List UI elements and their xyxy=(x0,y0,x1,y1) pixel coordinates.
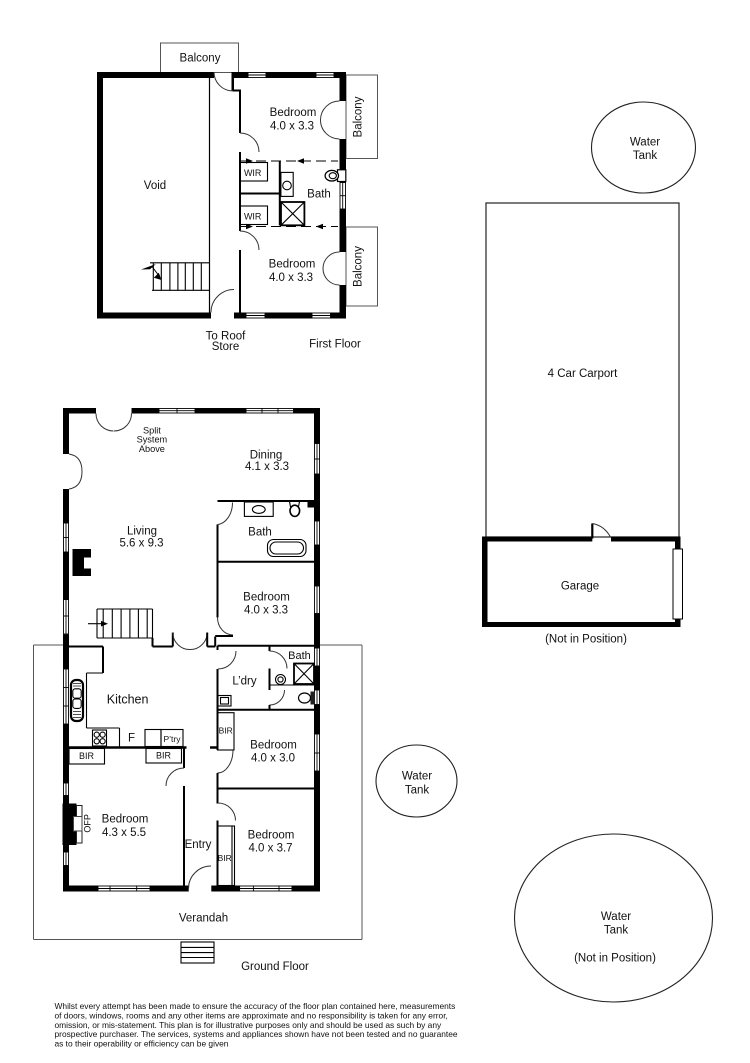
svg-text:Kitchen: Kitchen xyxy=(107,693,149,707)
svg-text:Living: Living xyxy=(127,526,157,538)
svg-text:Bedroom: Bedroom xyxy=(248,830,295,842)
svg-text:4.0 x 3.3: 4.0 x 3.3 xyxy=(244,605,288,617)
svg-text:Water: Water xyxy=(402,771,432,783)
svg-text:First Floor: First Floor xyxy=(309,339,361,351)
svg-text:Water: Water xyxy=(601,911,631,923)
svg-text:4.0 x 3.0: 4.0 x 3.0 xyxy=(251,753,295,765)
svg-text:Above: Above xyxy=(139,444,165,454)
svg-text:4.3 x 5.5: 4.3 x 5.5 xyxy=(102,827,146,839)
svg-text:Bath: Bath xyxy=(248,527,272,539)
svg-text:Tank: Tank xyxy=(405,785,430,797)
svg-text:WIR: WIR xyxy=(244,168,262,178)
svg-text:BIR: BIR xyxy=(79,751,95,761)
svg-text:(Not in Position): (Not in Position) xyxy=(545,634,627,646)
svg-text:Tank: Tank xyxy=(633,150,658,162)
svg-text:(Not in Position): (Not in Position) xyxy=(574,953,656,965)
svg-text:Bedroom: Bedroom xyxy=(250,740,297,752)
svg-text:Garage: Garage xyxy=(561,581,599,593)
svg-text:BIR: BIR xyxy=(219,726,233,736)
svg-text:Bath: Bath xyxy=(307,189,331,201)
svg-text:4.1 x 3.3: 4.1 x 3.3 xyxy=(245,461,289,473)
svg-text:Store: Store xyxy=(212,341,240,353)
svg-text:WIR: WIR xyxy=(244,212,262,222)
svg-text:Balcony: Balcony xyxy=(180,53,221,65)
svg-text:OFP: OFP xyxy=(83,814,93,833)
svg-text:Dining: Dining xyxy=(250,450,283,462)
svg-text:Void: Void xyxy=(144,180,166,192)
svg-text:Ground Floor: Ground Floor xyxy=(241,961,309,973)
svg-text:L’dry: L’dry xyxy=(232,676,257,688)
svg-text:Bedroom: Bedroom xyxy=(243,592,290,604)
svg-text:Bedroom: Bedroom xyxy=(102,814,149,826)
svg-text:4.0 x 3.3: 4.0 x 3.3 xyxy=(269,272,313,284)
svg-text:Water: Water xyxy=(630,137,660,149)
svg-text:Balcony: Balcony xyxy=(353,96,365,137)
svg-text:Bath: Bath xyxy=(288,650,311,662)
svg-text:Bedroom: Bedroom xyxy=(270,107,317,119)
svg-text:as to their operability or eff: as to their operability or efficiency ca… xyxy=(55,1039,229,1049)
svg-text:Tank: Tank xyxy=(604,925,629,937)
svg-text:F: F xyxy=(128,733,135,745)
svg-text:P’try: P’try xyxy=(164,734,182,744)
svg-text:BIR: BIR xyxy=(218,853,232,863)
svg-text:5.6 x 9.3: 5.6 x 9.3 xyxy=(119,538,163,550)
svg-text:4.0 x 3.3: 4.0 x 3.3 xyxy=(270,121,314,133)
svg-text:4.0 x 3.7: 4.0 x 3.7 xyxy=(248,843,292,855)
svg-text:BIR: BIR xyxy=(156,751,172,761)
svg-text:4 Car Carport: 4 Car Carport xyxy=(548,368,618,380)
svg-text:Balcony: Balcony xyxy=(353,246,365,287)
svg-text:Verandah: Verandah xyxy=(179,913,228,925)
svg-text:Entry: Entry xyxy=(185,839,212,851)
svg-text:Bedroom: Bedroom xyxy=(269,259,316,271)
